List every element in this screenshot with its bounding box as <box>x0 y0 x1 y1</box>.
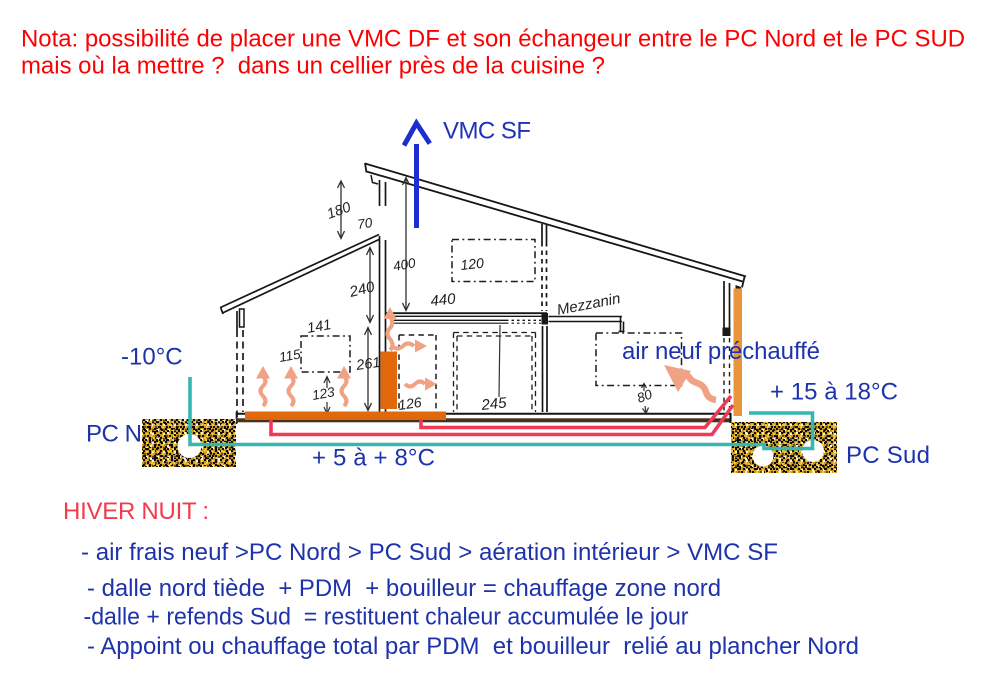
svg-text:- Appoint ou chauffage total p: - Appoint ou chauffage total par PDM et … <box>87 633 859 660</box>
svg-text:245: 245 <box>480 394 508 414</box>
svg-text:440: 440 <box>430 290 457 310</box>
svg-text:120: 120 <box>460 255 485 273</box>
svg-text:HIVER NUIT :: HIVER NUIT : <box>63 498 209 525</box>
svg-text:+ 5 à + 8°C: + 5 à + 8°C <box>312 445 435 472</box>
svg-text:VMC SF: VMC SF <box>443 118 531 145</box>
svg-text:air neuf préchauffé: air neuf préchauffé <box>622 338 820 365</box>
svg-text:+ 15 à 18°C: + 15 à 18°C <box>770 379 898 406</box>
svg-text:126: 126 <box>397 394 423 413</box>
svg-text:70: 70 <box>356 215 373 232</box>
svg-text:Nota: possibilité de placer un: Nota: possibilité de placer une VMC DF e… <box>21 26 965 53</box>
svg-text:- air frais neuf >PC Nord > PC: - air frais neuf >PC Nord > PC Sud > aér… <box>81 539 778 566</box>
svg-text:mais où la mettre ? dans un c: mais où la mettre ? dans un cellier près… <box>21 53 605 80</box>
svg-text:- dalle nord tiède + PDM + b: - dalle nord tiède + PDM + bouilleur = c… <box>87 575 721 602</box>
svg-text:-10°C: -10°C <box>121 344 183 371</box>
svg-text:PC Sud: PC Sud <box>846 442 930 469</box>
svg-text:-dalle + refends Sud = restit: -dalle + refends Sud = restituent chaleu… <box>84 604 689 631</box>
svg-text:PC N: PC N <box>86 421 142 448</box>
